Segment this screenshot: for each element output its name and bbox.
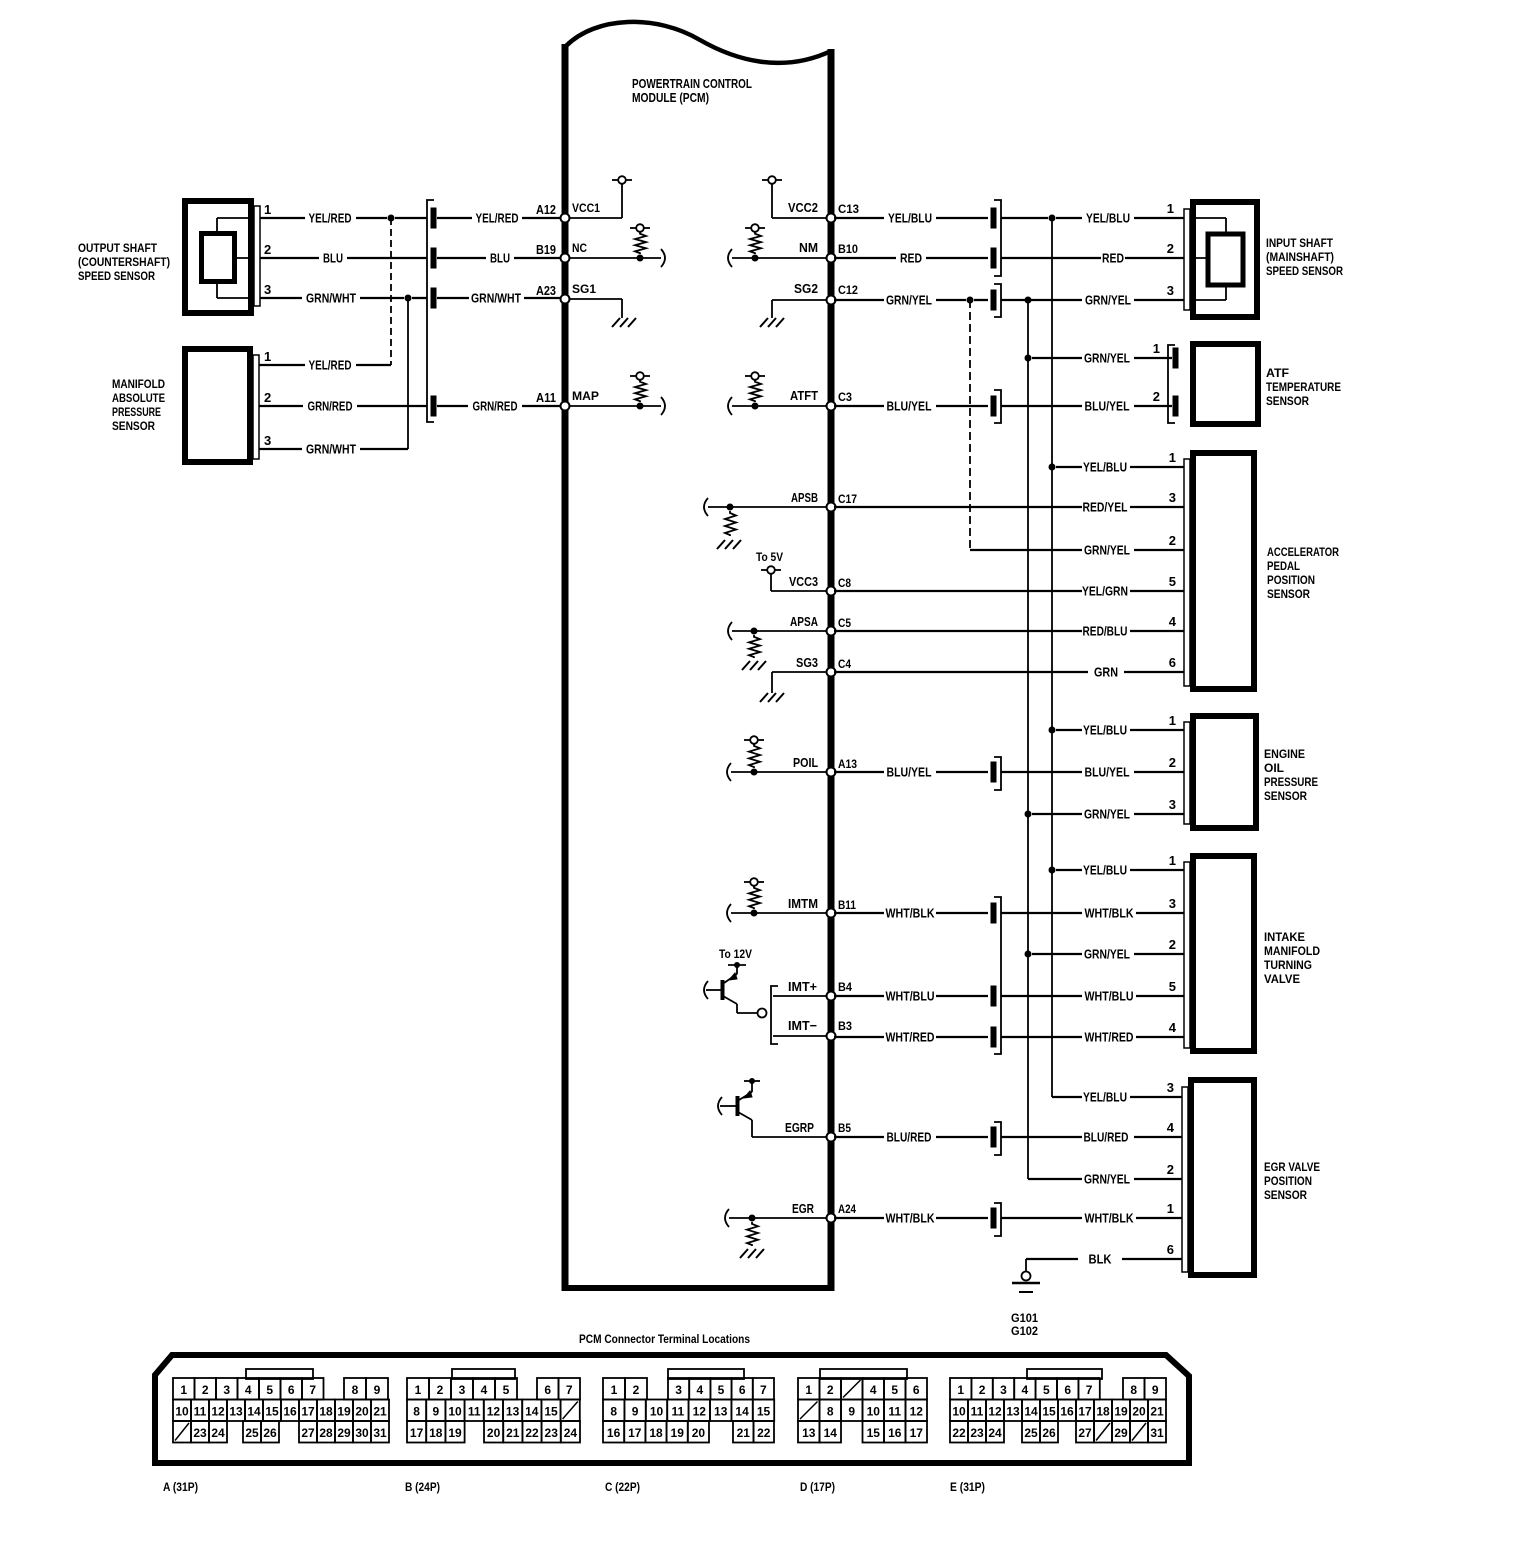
svg-text:19: 19 xyxy=(448,1426,462,1440)
svg-text:BLU/YEL: BLU/YEL xyxy=(887,400,932,414)
svg-text:ATF: ATF xyxy=(1266,366,1289,380)
svg-text:POSITION: POSITION xyxy=(1267,573,1315,587)
svg-text:B11: B11 xyxy=(838,898,856,912)
svg-text:RED: RED xyxy=(1102,252,1124,266)
svg-text:YEL/BLU: YEL/BLU xyxy=(888,212,932,226)
svg-text:YEL/BLU: YEL/BLU xyxy=(1083,724,1127,738)
svg-text:2: 2 xyxy=(979,1383,986,1397)
svg-text:2: 2 xyxy=(264,390,271,405)
svg-text:GRN/YEL: GRN/YEL xyxy=(1085,294,1131,308)
svg-text:WHT/BLU: WHT/BLU xyxy=(886,990,935,1004)
svg-text:YEL/BLU: YEL/BLU xyxy=(1086,212,1130,226)
svg-text:1: 1 xyxy=(957,1383,964,1397)
svg-text:WHT/BLK: WHT/BLK xyxy=(886,907,935,921)
svg-text:11: 11 xyxy=(468,1405,481,1419)
svg-text:19: 19 xyxy=(671,1426,685,1440)
svg-text:YEL/RED: YEL/RED xyxy=(309,359,352,373)
svg-text:23: 23 xyxy=(545,1426,559,1440)
svg-text:10: 10 xyxy=(448,1405,462,1419)
svg-text:IMT+: IMT+ xyxy=(788,979,817,994)
svg-text:1: 1 xyxy=(1169,450,1176,465)
svg-text:15: 15 xyxy=(757,1405,771,1419)
svg-text:(MAINSHAFT): (MAINSHAFT) xyxy=(1266,250,1334,264)
svg-text:18: 18 xyxy=(319,1405,333,1419)
svg-text:4: 4 xyxy=(1022,1383,1029,1397)
svg-text:C12: C12 xyxy=(838,283,858,297)
svg-text:5: 5 xyxy=(1169,979,1176,994)
svg-text:MODULE (PCM): MODULE (PCM) xyxy=(632,91,709,105)
svg-text:VCC1: VCC1 xyxy=(572,201,600,215)
svg-text:25: 25 xyxy=(245,1426,259,1440)
svg-text:C5: C5 xyxy=(838,616,851,630)
svg-text:B10: B10 xyxy=(838,242,858,256)
svg-text:WHT/BLK: WHT/BLK xyxy=(1085,1212,1134,1226)
svg-text:GRN/WHT: GRN/WHT xyxy=(471,292,521,306)
svg-text:YEL/BLU: YEL/BLU xyxy=(1083,1091,1127,1105)
svg-text:ABSOLUTE: ABSOLUTE xyxy=(112,391,165,405)
svg-text:8: 8 xyxy=(827,1405,834,1419)
svg-text:SENSOR: SENSOR xyxy=(1266,394,1309,408)
svg-text:12: 12 xyxy=(211,1405,225,1419)
svg-text:EGRP: EGRP xyxy=(785,1120,814,1135)
svg-text:3: 3 xyxy=(1167,283,1174,298)
svg-text:27: 27 xyxy=(301,1426,315,1440)
svg-text:1: 1 xyxy=(180,1383,187,1397)
svg-text:POSITION: POSITION xyxy=(1264,1174,1312,1188)
svg-text:RED: RED xyxy=(900,252,922,266)
svg-text:23: 23 xyxy=(193,1426,207,1440)
svg-text:11: 11 xyxy=(888,1405,901,1419)
svg-text:ATFT: ATFT xyxy=(790,388,818,403)
svg-text:13: 13 xyxy=(714,1405,728,1419)
svg-text:20: 20 xyxy=(1132,1405,1146,1419)
svg-text:YEL/BLU: YEL/BLU xyxy=(1083,461,1127,475)
svg-text:1: 1 xyxy=(1167,201,1174,216)
svg-text:5: 5 xyxy=(266,1383,273,1397)
svg-text:19: 19 xyxy=(1114,1405,1128,1419)
svg-text:A23: A23 xyxy=(536,283,556,298)
svg-text:10: 10 xyxy=(867,1405,881,1419)
svg-text:12: 12 xyxy=(693,1405,707,1419)
svg-text:SENSOR: SENSOR xyxy=(1264,789,1307,803)
svg-text:VALVE: VALVE xyxy=(1264,972,1300,986)
svg-text:BLU/RED: BLU/RED xyxy=(887,1131,932,1145)
svg-text:WHT/RED: WHT/RED xyxy=(886,1031,935,1045)
svg-text:20: 20 xyxy=(692,1426,706,1440)
svg-text:23: 23 xyxy=(970,1426,984,1440)
svg-text:BLU/YEL: BLU/YEL xyxy=(887,766,932,780)
svg-text:A13: A13 xyxy=(838,757,857,771)
svg-text:2: 2 xyxy=(202,1383,209,1397)
svg-text:GRN/WHT: GRN/WHT xyxy=(306,292,356,306)
svg-text:17: 17 xyxy=(628,1426,642,1440)
svg-text:2: 2 xyxy=(1169,755,1176,770)
svg-text:13: 13 xyxy=(229,1405,243,1419)
svg-text:30: 30 xyxy=(355,1426,369,1440)
svg-text:2: 2 xyxy=(437,1383,444,1397)
svg-text:26: 26 xyxy=(263,1426,277,1440)
svg-text:GRN: GRN xyxy=(1094,666,1118,680)
svg-text:IMTM: IMTM xyxy=(788,896,818,911)
svg-text:5: 5 xyxy=(503,1383,510,1397)
svg-text:A12: A12 xyxy=(536,202,556,217)
svg-text:7: 7 xyxy=(1086,1383,1093,1397)
svg-text:17: 17 xyxy=(410,1426,424,1440)
svg-text:24: 24 xyxy=(211,1426,225,1440)
svg-text:To 12V: To 12V xyxy=(719,947,753,961)
svg-text:4: 4 xyxy=(1167,1120,1175,1135)
svg-text:4: 4 xyxy=(1169,614,1177,629)
svg-text:C4: C4 xyxy=(838,657,851,671)
svg-text:WHT/BLK: WHT/BLK xyxy=(1085,907,1134,921)
svg-text:GRN/YEL: GRN/YEL xyxy=(1084,352,1130,366)
svg-text:EGR VALVE: EGR VALVE xyxy=(1264,1160,1320,1174)
svg-text:15: 15 xyxy=(1042,1405,1056,1419)
svg-text:21: 21 xyxy=(1150,1405,1164,1419)
svg-text:B (24P): B (24P) xyxy=(405,1480,440,1494)
svg-text:3: 3 xyxy=(459,1383,466,1397)
svg-text:20: 20 xyxy=(487,1426,501,1440)
svg-text:11: 11 xyxy=(672,1405,685,1419)
svg-text:YEL/BLU: YEL/BLU xyxy=(1083,864,1127,878)
svg-text:PCM Connector Terminal Locatio: PCM Connector Terminal Locations xyxy=(579,1332,750,1346)
svg-text:BLU/YEL: BLU/YEL xyxy=(1085,400,1130,414)
svg-text:BLK: BLK xyxy=(1089,1253,1112,1267)
svg-text:6: 6 xyxy=(913,1383,920,1397)
svg-text:B19: B19 xyxy=(536,242,556,257)
svg-text:YEL/RED: YEL/RED xyxy=(476,212,519,226)
svg-text:MANIFOLD: MANIFOLD xyxy=(1264,944,1320,958)
svg-text:2: 2 xyxy=(1153,389,1160,404)
svg-text:6: 6 xyxy=(1167,1242,1174,1257)
svg-text:C3: C3 xyxy=(838,390,852,404)
svg-text:1: 1 xyxy=(1167,1201,1174,1216)
svg-text:9: 9 xyxy=(374,1383,381,1397)
svg-text:INTAKE: INTAKE xyxy=(1264,930,1305,944)
svg-text:3: 3 xyxy=(1169,896,1176,911)
svg-text:7: 7 xyxy=(566,1383,573,1397)
svg-text:1: 1 xyxy=(264,349,271,364)
svg-text:1: 1 xyxy=(415,1383,422,1397)
svg-text:BLU/RED: BLU/RED xyxy=(1084,1131,1129,1145)
svg-text:10: 10 xyxy=(650,1405,664,1419)
svg-text:4: 4 xyxy=(870,1383,877,1397)
svg-text:E (31P): E (31P) xyxy=(950,1480,985,1494)
svg-text:3: 3 xyxy=(264,433,271,448)
svg-text:WHT/RED: WHT/RED xyxy=(1085,1031,1134,1045)
svg-text:17: 17 xyxy=(1078,1405,1092,1419)
svg-text:31: 31 xyxy=(1150,1426,1164,1440)
svg-text:PEDAL: PEDAL xyxy=(1267,559,1300,573)
svg-text:2: 2 xyxy=(1167,1162,1174,1177)
svg-text:GRN/YEL: GRN/YEL xyxy=(886,294,932,308)
svg-text:5: 5 xyxy=(891,1383,898,1397)
svg-text:TURNING: TURNING xyxy=(1264,958,1312,972)
svg-text:6: 6 xyxy=(288,1383,295,1397)
svg-text:A24: A24 xyxy=(838,1202,856,1216)
svg-text:OIL: OIL xyxy=(1264,761,1284,775)
svg-text:25: 25 xyxy=(1024,1426,1038,1440)
svg-text:SENSOR: SENSOR xyxy=(112,419,155,433)
svg-text:18: 18 xyxy=(429,1426,443,1440)
svg-text:VCC2: VCC2 xyxy=(788,200,818,215)
svg-text:13: 13 xyxy=(802,1426,816,1440)
svg-text:NC: NC xyxy=(572,241,587,255)
svg-text:10: 10 xyxy=(175,1405,189,1419)
svg-text:APSB: APSB xyxy=(791,490,818,505)
svg-text:5: 5 xyxy=(1043,1383,1050,1397)
svg-text:SPEED SENSOR: SPEED SENSOR xyxy=(78,269,155,283)
svg-text:14: 14 xyxy=(525,1405,539,1419)
svg-text:9: 9 xyxy=(432,1405,439,1419)
svg-text:6: 6 xyxy=(544,1383,551,1397)
svg-text:8: 8 xyxy=(352,1383,359,1397)
svg-text:15: 15 xyxy=(265,1405,279,1419)
svg-text:MANIFOLD: MANIFOLD xyxy=(112,377,165,391)
svg-text:24: 24 xyxy=(564,1426,578,1440)
svg-text:WHT/BLK: WHT/BLK xyxy=(886,1212,935,1226)
svg-text:16: 16 xyxy=(888,1426,902,1440)
svg-text:12: 12 xyxy=(910,1405,924,1419)
svg-text:SG1: SG1 xyxy=(572,282,596,296)
svg-text:4: 4 xyxy=(1169,1020,1177,1035)
svg-text:3: 3 xyxy=(1169,490,1176,505)
svg-text:4: 4 xyxy=(245,1383,252,1397)
svg-text:9: 9 xyxy=(1152,1383,1159,1397)
svg-text:WHT/BLU: WHT/BLU xyxy=(1085,990,1134,1004)
svg-text:3: 3 xyxy=(223,1383,230,1397)
svg-text:BLU: BLU xyxy=(490,252,510,266)
svg-text:9: 9 xyxy=(632,1405,639,1419)
svg-text:13: 13 xyxy=(1006,1405,1020,1419)
svg-text:11: 11 xyxy=(194,1405,207,1419)
svg-text:8: 8 xyxy=(610,1405,617,1419)
svg-text:3: 3 xyxy=(1169,797,1176,812)
svg-text:2: 2 xyxy=(264,242,271,257)
svg-text:26: 26 xyxy=(1042,1426,1056,1440)
svg-text:6: 6 xyxy=(739,1383,746,1397)
svg-text:29: 29 xyxy=(1114,1426,1128,1440)
svg-text:17: 17 xyxy=(910,1426,924,1440)
svg-text:2: 2 xyxy=(1167,241,1174,256)
svg-text:TEMPERATURE: TEMPERATURE xyxy=(1266,380,1341,394)
svg-text:BLU/YEL: BLU/YEL xyxy=(1085,766,1130,780)
svg-text:9: 9 xyxy=(848,1405,855,1419)
svg-text:RED/YEL: RED/YEL xyxy=(1083,501,1128,515)
svg-text:20: 20 xyxy=(355,1405,369,1419)
svg-text:14: 14 xyxy=(247,1405,261,1419)
svg-text:1: 1 xyxy=(1153,341,1160,356)
svg-text:POIL: POIL xyxy=(793,755,818,770)
svg-text:4: 4 xyxy=(696,1383,703,1397)
svg-text:SG3: SG3 xyxy=(796,655,818,670)
svg-text:C13: C13 xyxy=(838,202,859,216)
svg-text:APSA: APSA xyxy=(790,614,818,629)
svg-text:2: 2 xyxy=(1169,533,1176,548)
svg-text:11: 11 xyxy=(971,1405,984,1419)
svg-text:D (17P): D (17P) xyxy=(800,1480,835,1494)
svg-text:ACCELERATOR: ACCELERATOR xyxy=(1267,545,1339,559)
svg-text:VCC3: VCC3 xyxy=(789,574,818,589)
svg-text:NM: NM xyxy=(799,240,818,255)
svg-text:GRN/YEL: GRN/YEL xyxy=(1084,1173,1130,1187)
svg-text:21: 21 xyxy=(373,1405,387,1419)
svg-text:14: 14 xyxy=(824,1426,838,1440)
svg-text:ENGINE: ENGINE xyxy=(1264,747,1305,761)
svg-text:12: 12 xyxy=(988,1405,1002,1419)
svg-text:10: 10 xyxy=(952,1405,966,1419)
svg-text:G102: G102 xyxy=(1011,1324,1038,1338)
svg-text:C17: C17 xyxy=(838,492,857,506)
svg-text:31: 31 xyxy=(373,1426,387,1440)
svg-text:16: 16 xyxy=(283,1405,297,1419)
svg-text:18: 18 xyxy=(1096,1405,1110,1419)
svg-text:A (31P): A (31P) xyxy=(163,1480,198,1494)
svg-text:29: 29 xyxy=(337,1426,351,1440)
svg-text:5: 5 xyxy=(1169,574,1176,589)
svg-text:GRN/RED: GRN/RED xyxy=(308,400,353,414)
svg-text:3: 3 xyxy=(264,282,271,297)
svg-text:To 5V: To 5V xyxy=(756,550,784,564)
svg-text:4: 4 xyxy=(481,1383,488,1397)
svg-text:GRN/YEL: GRN/YEL xyxy=(1084,544,1130,558)
svg-text:27: 27 xyxy=(1078,1426,1092,1440)
svg-text:RED/BLU: RED/BLU xyxy=(1083,625,1128,639)
svg-text:C8: C8 xyxy=(838,576,851,590)
svg-text:22: 22 xyxy=(757,1426,771,1440)
svg-text:SENSOR: SENSOR xyxy=(1264,1188,1307,1202)
svg-text:GRN/YEL: GRN/YEL xyxy=(1084,808,1130,822)
svg-text:INPUT SHAFT: INPUT SHAFT xyxy=(1266,236,1333,250)
svg-text:13: 13 xyxy=(506,1405,520,1419)
svg-text:2: 2 xyxy=(1169,937,1176,952)
svg-text:1: 1 xyxy=(1169,713,1176,728)
svg-text:15: 15 xyxy=(544,1405,558,1419)
svg-text:PRESSURE: PRESSURE xyxy=(112,405,161,419)
svg-text:14: 14 xyxy=(1024,1405,1038,1419)
svg-text:2: 2 xyxy=(827,1383,834,1397)
svg-text:EGR: EGR xyxy=(792,1201,814,1216)
svg-text:14: 14 xyxy=(735,1405,749,1419)
svg-text:22: 22 xyxy=(525,1426,539,1440)
svg-text:28: 28 xyxy=(319,1426,333,1440)
svg-text:6: 6 xyxy=(1169,655,1176,670)
svg-text:GRN/WHT: GRN/WHT xyxy=(306,443,356,457)
svg-text:21: 21 xyxy=(737,1426,751,1440)
svg-text:3: 3 xyxy=(675,1383,682,1397)
svg-text:C (22P): C (22P) xyxy=(605,1480,640,1494)
svg-text:1: 1 xyxy=(611,1383,618,1397)
svg-text:6: 6 xyxy=(1064,1383,1071,1397)
svg-text:(COUNTERSHAFT): (COUNTERSHAFT) xyxy=(78,255,170,269)
svg-text:16: 16 xyxy=(607,1426,621,1440)
svg-text:17: 17 xyxy=(301,1405,315,1419)
svg-text:1: 1 xyxy=(264,202,271,217)
svg-text:24: 24 xyxy=(988,1426,1002,1440)
svg-text:3: 3 xyxy=(1000,1383,1007,1397)
svg-text:BLU: BLU xyxy=(323,252,343,266)
svg-text:MAP: MAP xyxy=(572,389,599,403)
svg-text:19: 19 xyxy=(337,1405,351,1419)
svg-text:YEL/GRN: YEL/GRN xyxy=(1082,585,1128,599)
svg-text:18: 18 xyxy=(649,1426,663,1440)
svg-text:A11: A11 xyxy=(536,390,556,405)
svg-text:IMT−: IMT− xyxy=(788,1018,817,1033)
svg-text:GRN/YEL: GRN/YEL xyxy=(1084,948,1130,962)
svg-text:3: 3 xyxy=(1167,1080,1174,1095)
svg-text:7: 7 xyxy=(309,1383,316,1397)
svg-text:16: 16 xyxy=(1060,1405,1074,1419)
svg-text:8: 8 xyxy=(1130,1383,1137,1397)
svg-text:B3: B3 xyxy=(838,1019,852,1033)
svg-text:15: 15 xyxy=(867,1426,881,1440)
svg-text:12: 12 xyxy=(487,1405,501,1419)
svg-text:1: 1 xyxy=(805,1383,812,1397)
svg-text:2: 2 xyxy=(633,1383,640,1397)
svg-text:B4: B4 xyxy=(838,980,852,994)
svg-text:SENSOR: SENSOR xyxy=(1267,587,1310,601)
svg-text:21: 21 xyxy=(506,1426,520,1440)
svg-text:1: 1 xyxy=(1169,853,1176,868)
svg-text:GRN/RED: GRN/RED xyxy=(473,400,518,414)
svg-text:SPEED SENSOR: SPEED SENSOR xyxy=(1266,264,1343,278)
svg-text:8: 8 xyxy=(413,1405,420,1419)
svg-text:OUTPUT SHAFT: OUTPUT SHAFT xyxy=(78,241,157,255)
svg-text:POWERTRAIN CONTROL: POWERTRAIN CONTROL xyxy=(632,77,752,91)
svg-text:5: 5 xyxy=(718,1383,725,1397)
svg-text:G101: G101 xyxy=(1011,1311,1038,1325)
svg-text:22: 22 xyxy=(952,1426,966,1440)
svg-text:B5: B5 xyxy=(838,1121,851,1135)
svg-text:7: 7 xyxy=(760,1383,767,1397)
svg-text:SG2: SG2 xyxy=(794,281,818,296)
svg-text:YEL/RED: YEL/RED xyxy=(309,212,352,226)
svg-text:PRESSURE: PRESSURE xyxy=(1264,775,1318,789)
